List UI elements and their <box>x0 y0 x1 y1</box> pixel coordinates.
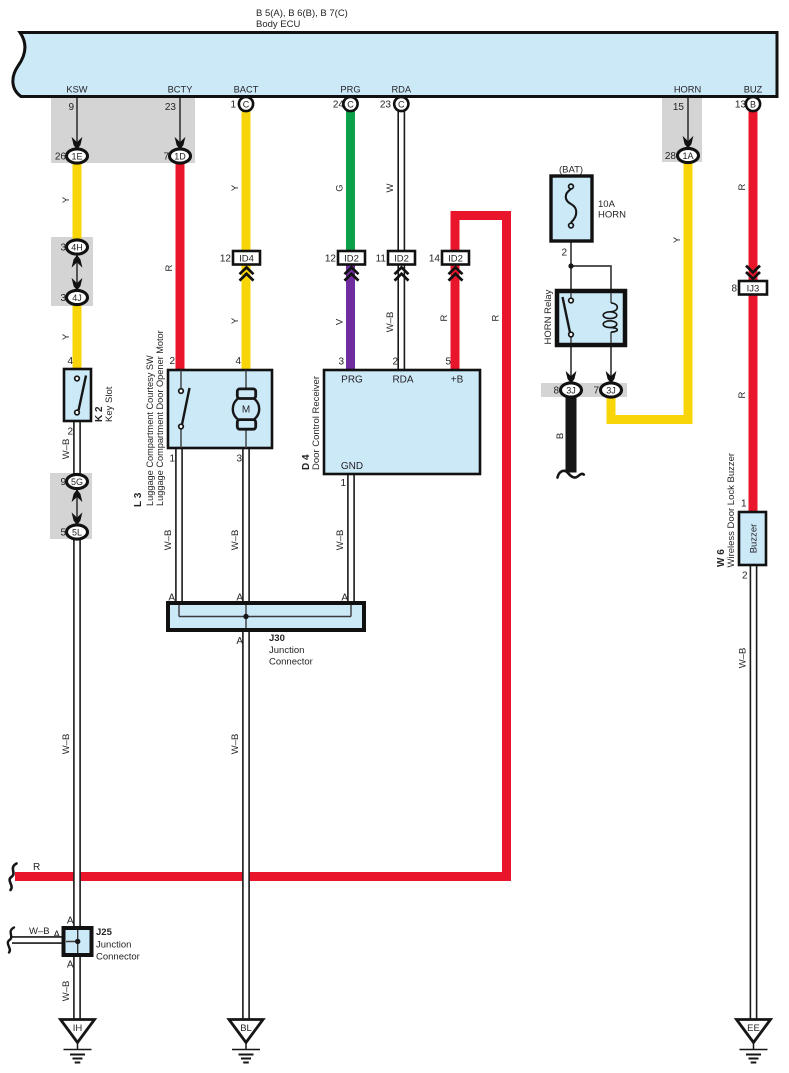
svg-text:W–B: W–B <box>738 648 749 669</box>
svg-text:5G: 5G <box>71 477 83 487</box>
svg-text:26: 26 <box>55 152 67 163</box>
svg-text:C: C <box>398 100 405 110</box>
svg-text:3J: 3J <box>606 386 616 396</box>
svg-text:Junction: Junction <box>269 645 304 656</box>
svg-text:23: 23 <box>380 100 392 111</box>
svg-text:1E: 1E <box>71 152 82 162</box>
svg-text:PRG: PRG <box>340 85 360 95</box>
svg-text:5: 5 <box>445 357 451 368</box>
svg-text:1: 1 <box>169 454 175 465</box>
svg-text:W–B: W–B <box>29 926 50 937</box>
svg-text:2: 2 <box>67 427 73 438</box>
svg-text:C: C <box>243 100 250 110</box>
svg-text:R: R <box>164 264 175 271</box>
svg-text:V: V <box>335 318 346 325</box>
svg-text:3: 3 <box>338 357 344 368</box>
svg-text:4H: 4H <box>71 243 83 253</box>
svg-text:HORN Relay: HORN Relay <box>543 289 554 344</box>
svg-text:RDA: RDA <box>391 85 411 95</box>
svg-text:EE: EE <box>747 1023 760 1034</box>
svg-text:J25: J25 <box>96 927 113 938</box>
svg-text:1A: 1A <box>682 151 693 161</box>
svg-text:ID2: ID2 <box>344 254 359 265</box>
svg-text:B 5(A), B 6(B), B 7(C): B 5(A), B 6(B), B 7(C) <box>256 8 348 19</box>
svg-text:Y: Y <box>672 236 683 243</box>
svg-text:HORN: HORN <box>598 210 626 221</box>
svg-text:PRG: PRG <box>341 375 363 386</box>
svg-text:ID2: ID2 <box>394 254 409 265</box>
svg-text:A: A <box>67 916 74 927</box>
svg-text:4: 4 <box>67 356 73 367</box>
svg-text:13: 13 <box>735 100 747 111</box>
svg-text:L 3: L 3 <box>133 492 144 507</box>
svg-text:Connector: Connector <box>269 657 313 668</box>
svg-text:RDA: RDA <box>392 375 413 386</box>
svg-text:B: B <box>555 433 566 439</box>
svg-text:2: 2 <box>742 571 748 582</box>
svg-text:R: R <box>33 862 40 873</box>
svg-text:Junction: Junction <box>96 940 131 951</box>
svg-text:Y: Y <box>61 333 72 340</box>
svg-text:23: 23 <box>165 102 177 113</box>
svg-text:(BAT): (BAT) <box>559 165 583 176</box>
svg-text:M: M <box>242 405 250 416</box>
svg-text:3J: 3J <box>566 386 576 396</box>
svg-text:11: 11 <box>376 254 387 265</box>
svg-text:Y: Y <box>230 317 241 324</box>
svg-text:B: B <box>750 100 756 110</box>
svg-text:A: A <box>236 636 243 647</box>
svg-text:BUZ: BUZ <box>744 85 763 95</box>
svg-text:BACT: BACT <box>234 85 259 95</box>
svg-text:1: 1 <box>340 478 346 489</box>
svg-text:A: A <box>236 593 243 604</box>
svg-text:28: 28 <box>665 151 677 162</box>
svg-text:8: 8 <box>731 284 737 295</box>
svg-text:Door Control Receiver: Door Control Receiver <box>311 376 322 470</box>
svg-text:Buzzer: Buzzer <box>749 524 760 554</box>
svg-text:1: 1 <box>230 100 236 111</box>
svg-text:R: R <box>491 314 502 321</box>
svg-text:W–B: W–B <box>61 981 72 1002</box>
svg-text:10A: 10A <box>598 199 616 210</box>
svg-text:R: R <box>737 391 748 398</box>
svg-text:1D: 1D <box>174 152 186 162</box>
svg-text:24: 24 <box>333 100 345 111</box>
svg-text:W–B: W–B <box>163 530 174 551</box>
svg-text:14: 14 <box>429 254 441 265</box>
svg-text:GND: GND <box>341 461 363 472</box>
svg-text:8: 8 <box>553 386 559 397</box>
svg-text:W–B: W–B <box>61 439 72 460</box>
svg-text:12: 12 <box>325 254 337 265</box>
svg-text:W–B: W–B <box>230 734 241 755</box>
svg-text:A: A <box>168 593 175 604</box>
svg-text:3: 3 <box>60 293 66 304</box>
svg-text:BL: BL <box>240 1023 252 1034</box>
svg-text:W–B: W–B <box>385 312 396 333</box>
svg-text:HORN: HORN <box>674 85 701 95</box>
svg-text:A: A <box>67 960 74 971</box>
svg-text:BCTY: BCTY <box>168 85 193 95</box>
svg-text:IH: IH <box>73 1023 83 1034</box>
svg-text:W–B: W–B <box>230 530 241 551</box>
svg-text:ID4: ID4 <box>239 254 254 265</box>
svg-text:4: 4 <box>235 356 241 367</box>
svg-text:R: R <box>439 314 450 321</box>
svg-text:5L: 5L <box>72 528 82 538</box>
svg-text:4J: 4J <box>72 293 82 303</box>
svg-text:Y: Y <box>61 196 72 203</box>
svg-text:J30: J30 <box>269 633 285 644</box>
svg-text:2: 2 <box>169 356 175 367</box>
svg-text:IJ3: IJ3 <box>747 284 760 295</box>
svg-text:G: G <box>335 184 346 191</box>
svg-text:Key Slot: Key Slot <box>104 386 115 422</box>
svg-text:KSW: KSW <box>66 85 87 95</box>
svg-text:5: 5 <box>60 528 66 539</box>
svg-text:7: 7 <box>593 386 599 397</box>
svg-text:9: 9 <box>68 102 74 113</box>
svg-text:W–B: W–B <box>61 734 72 755</box>
svg-text:W: W <box>385 183 396 192</box>
svg-text:C: C <box>347 100 354 110</box>
svg-text:Y: Y <box>230 184 241 191</box>
svg-text:12: 12 <box>220 254 232 265</box>
svg-text:15: 15 <box>673 102 685 113</box>
svg-text:A: A <box>53 930 60 941</box>
svg-text:Luggage Compartment Door Opene: Luggage Compartment Door Opener Motor <box>155 330 165 506</box>
svg-text:3: 3 <box>236 454 242 465</box>
svg-text:R: R <box>737 183 748 190</box>
svg-text:+B: +B <box>451 375 464 386</box>
svg-text:Connector: Connector <box>96 952 140 963</box>
svg-text:A: A <box>341 593 348 604</box>
svg-text:ID2: ID2 <box>448 254 463 265</box>
svg-text:Luggage Compartment Courtesy S: Luggage Compartment Courtesy SW <box>145 355 155 506</box>
svg-text:2: 2 <box>392 357 398 368</box>
svg-text:7: 7 <box>163 152 169 163</box>
svg-text:9: 9 <box>60 477 66 488</box>
svg-text:2: 2 <box>561 248 567 259</box>
svg-text:Wireless Door Lock Buzzer: Wireless Door Lock Buzzer <box>726 453 737 568</box>
svg-text:3: 3 <box>60 243 66 254</box>
svg-text:W–B: W–B <box>335 530 346 551</box>
svg-text:Body ECU: Body ECU <box>256 19 300 30</box>
svg-text:1: 1 <box>741 499 747 510</box>
